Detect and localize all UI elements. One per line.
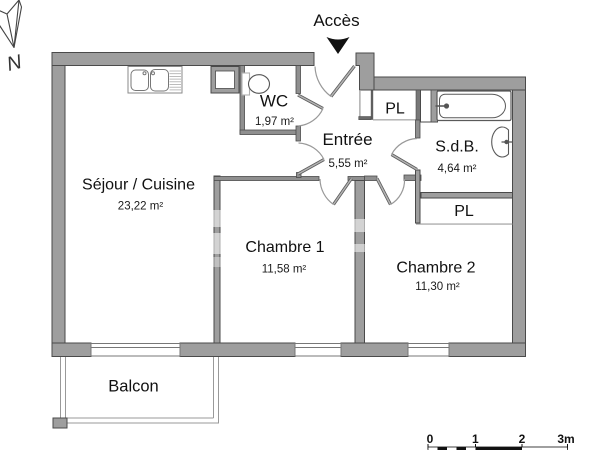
svg-text:PL: PL	[454, 203, 474, 220]
svg-text:PL: PL	[385, 101, 405, 118]
svg-text:11,58 m²: 11,58 m²	[262, 264, 307, 276]
svg-text:Entrée: Entrée	[322, 130, 372, 149]
svg-text:23,22 m²: 23,22 m²	[118, 201, 164, 213]
svg-text:2: 2	[519, 432, 526, 446]
svg-text:5,55 m²: 5,55 m²	[329, 158, 368, 170]
svg-text:1,97 m²: 1,97 m²	[255, 116, 294, 128]
svg-text:WC: WC	[260, 92, 288, 111]
svg-text:11,30 m²: 11,30 m²	[415, 281, 460, 293]
svg-text:3m: 3m	[557, 432, 574, 446]
svg-text:Chambre 1: Chambre 1	[245, 239, 324, 256]
svg-text:1: 1	[472, 432, 479, 446]
svg-text:4,64 m²: 4,64 m²	[438, 163, 477, 175]
svg-text:Séjour / Cuisine: Séjour / Cuisine	[82, 177, 195, 194]
svg-text:Chambre 2: Chambre 2	[396, 260, 475, 277]
svg-text:0: 0	[427, 432, 434, 446]
svg-text:Accès: Accès	[313, 11, 359, 30]
svg-text:S.d.B.: S.d.B.	[435, 139, 479, 156]
svg-text:Balcon: Balcon	[108, 378, 158, 396]
